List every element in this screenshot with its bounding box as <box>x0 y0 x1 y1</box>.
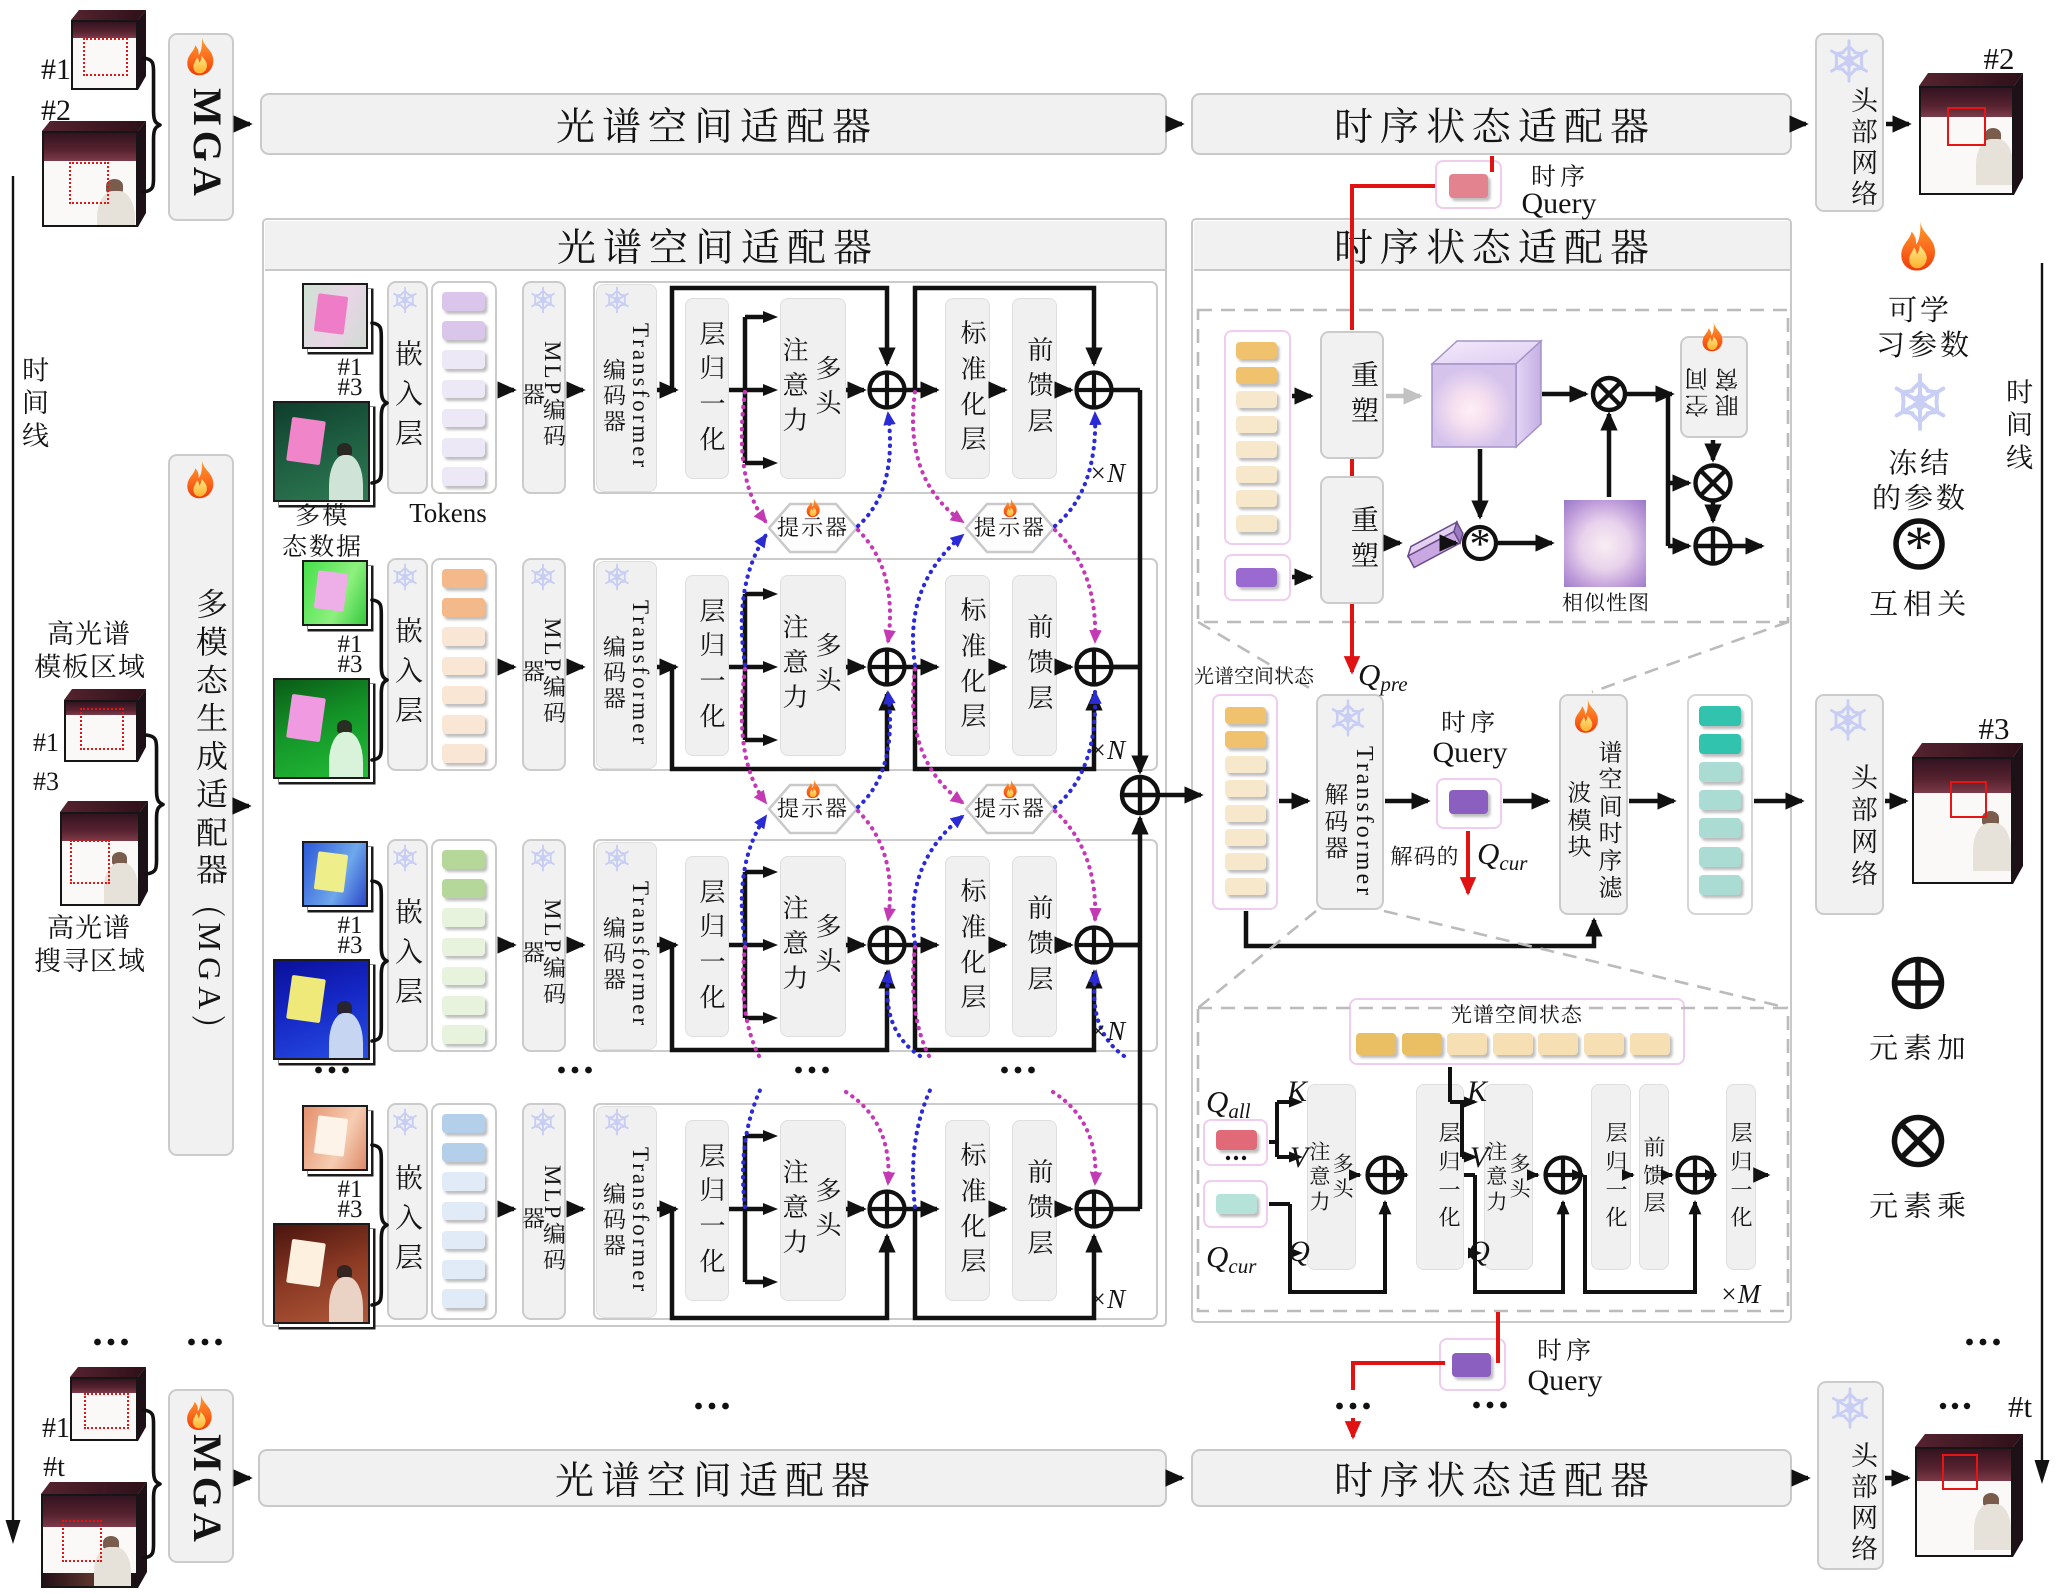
svg-text:*: * <box>1905 514 1934 579</box>
